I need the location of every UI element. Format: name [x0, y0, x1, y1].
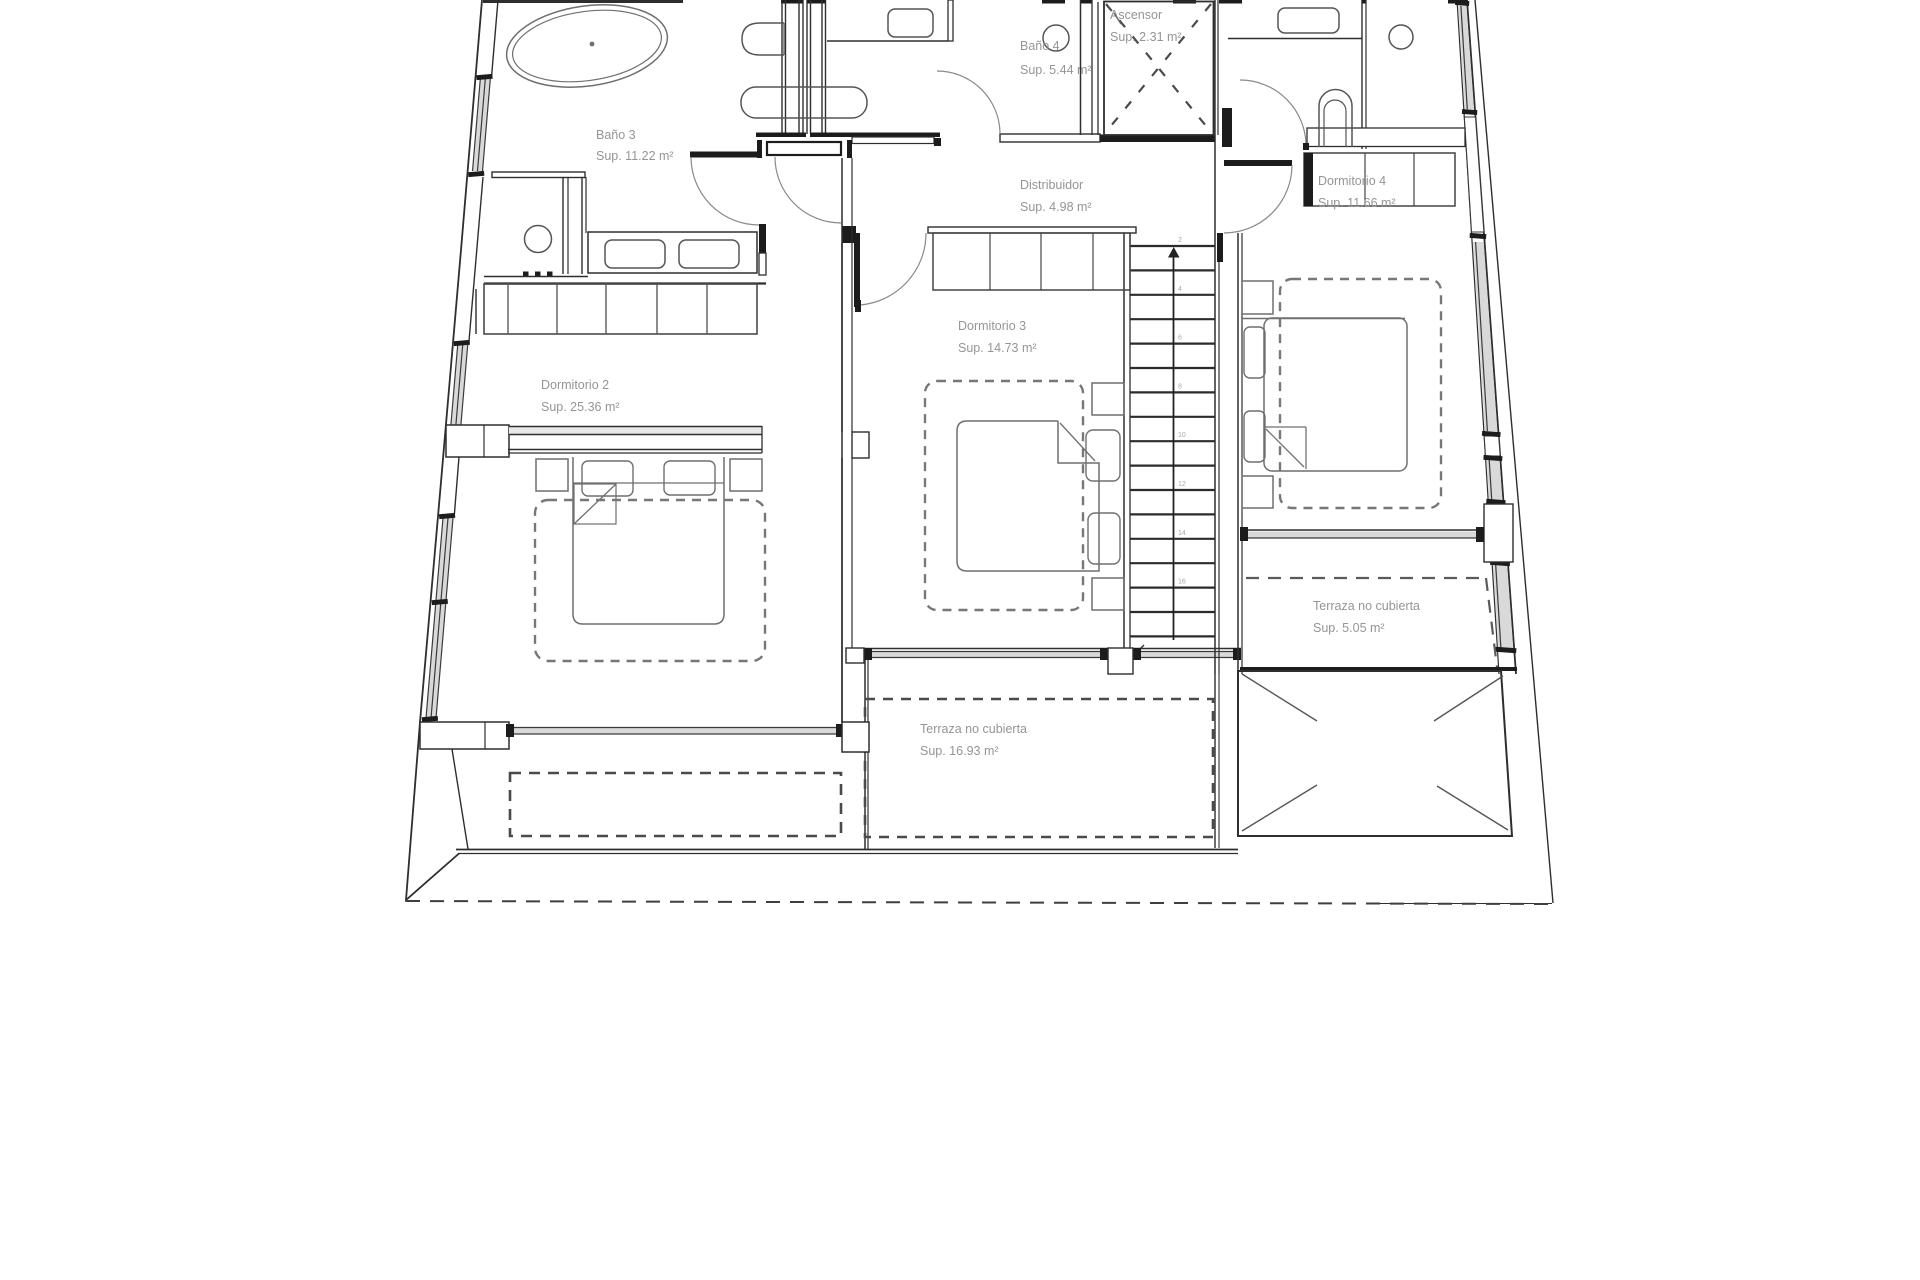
svg-text:4: 4 — [1178, 286, 1182, 293]
svg-text:Sup. 11.66 m²: Sup. 11.66 m² — [1318, 196, 1396, 210]
svg-text:2: 2 — [1178, 237, 1182, 244]
svg-text:Dormitorio 3: Dormitorio 3 — [958, 319, 1026, 333]
svg-text:Sup. 14.73 m²: Sup. 14.73 m² — [958, 341, 1037, 355]
svg-text:Terraza no cubierta: Terraza no cubierta — [1313, 599, 1420, 613]
svg-text:16: 16 — [1178, 579, 1186, 586]
svg-text:14: 14 — [1178, 530, 1186, 537]
svg-text:10: 10 — [1178, 432, 1186, 439]
svg-text:Sup. 11.22 m²: Sup. 11.22 m² — [596, 149, 674, 163]
svg-text:Terraza no cubierta: Terraza no cubierta — [920, 722, 1027, 736]
svg-text:8: 8 — [1178, 383, 1182, 390]
svg-text:Dormitorio 4: Dormitorio 4 — [1318, 174, 1386, 188]
svg-text:Distribuidor: Distribuidor — [1020, 178, 1083, 192]
svg-text:Sup. 25.36 m²: Sup. 25.36 m² — [541, 400, 620, 414]
svg-text:Sup. 5.05 m²: Sup. 5.05 m² — [1313, 621, 1385, 635]
svg-text:12: 12 — [1178, 481, 1186, 488]
svg-text:Sup. 16.93 m²: Sup. 16.93 m² — [920, 744, 999, 758]
svg-text:Baño 4: Baño 4 — [1020, 39, 1060, 53]
svg-text:Baño 3: Baño 3 — [596, 128, 636, 142]
svg-text:6: 6 — [1178, 335, 1182, 342]
svg-text:Dormitorio 2: Dormitorio 2 — [541, 378, 609, 392]
svg-text:Sup. 4.98 m²: Sup. 4.98 m² — [1020, 200, 1092, 214]
svg-text:Sup. 2.31 m²: Sup. 2.31 m² — [1110, 30, 1182, 44]
